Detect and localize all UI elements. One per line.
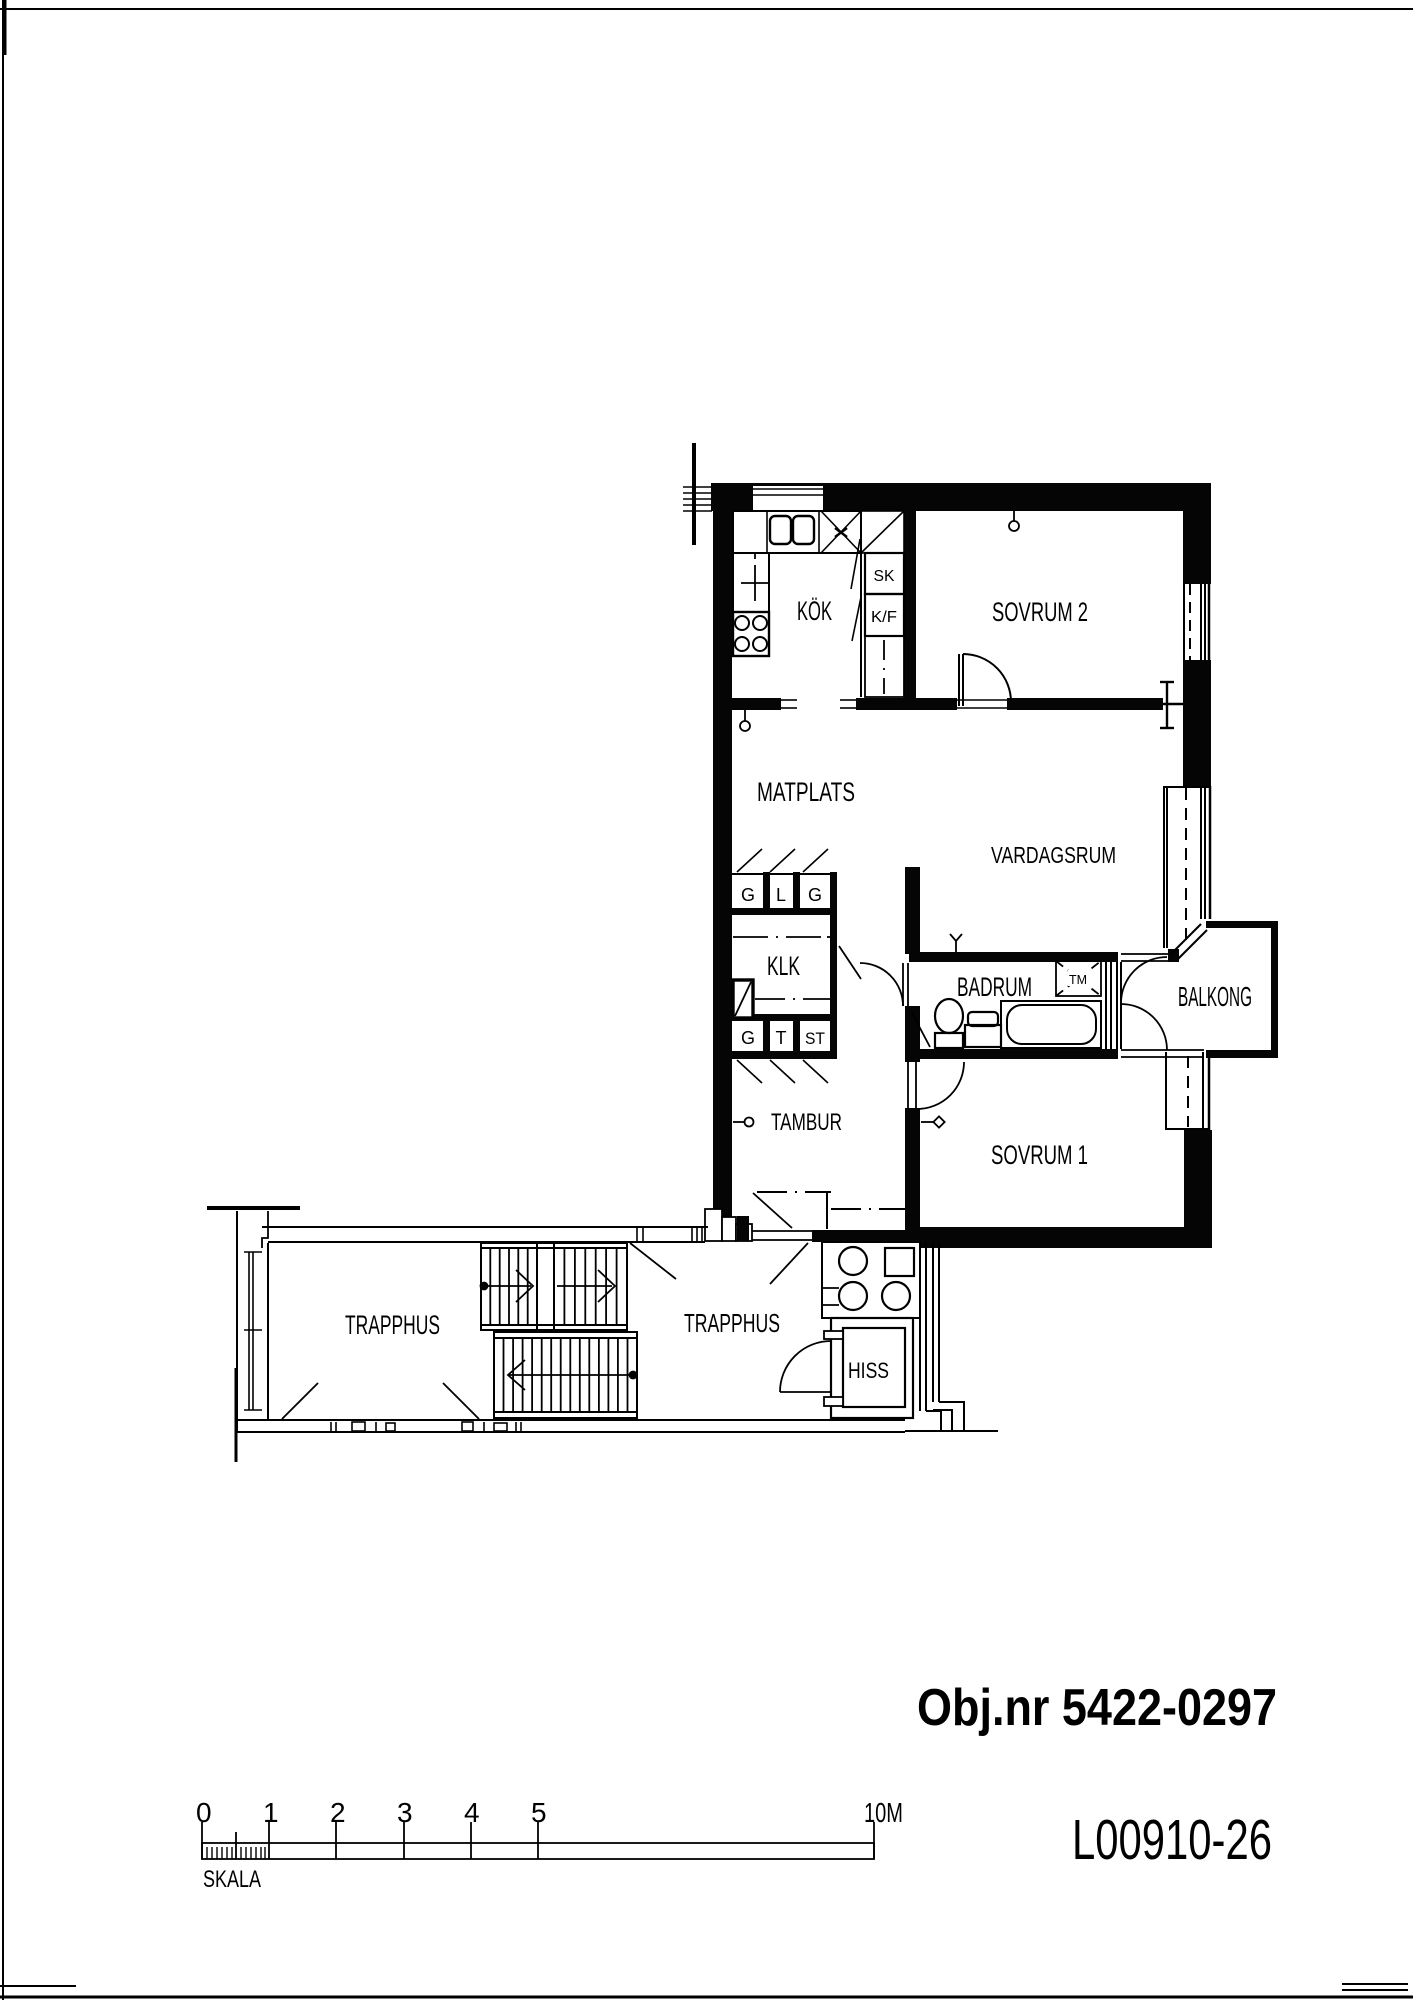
svg-text:G: G — [741, 885, 755, 905]
svg-text:Obj.nr 5422-0297: Obj.nr 5422-0297 — [917, 1679, 1277, 1737]
svg-text:TAMBUR: TAMBUR — [771, 1109, 842, 1136]
svg-text:SK: SK — [874, 568, 895, 585]
svg-text:BALKONG: BALKONG — [1178, 981, 1252, 1012]
svg-text:L: L — [776, 885, 786, 905]
svg-text:0: 0 — [196, 1797, 212, 1828]
svg-text:BADRUM: BADRUM — [957, 972, 1032, 1002]
svg-text:VARDAGSRUM: VARDAGSRUM — [991, 842, 1116, 868]
svg-text:1: 1 — [263, 1797, 279, 1828]
svg-text:MATPLATS: MATPLATS — [757, 777, 855, 807]
svg-text:TRAPPHUS: TRAPPHUS — [345, 1310, 440, 1340]
svg-text:4: 4 — [464, 1797, 480, 1828]
svg-text:HISS: HISS — [848, 1358, 889, 1383]
svg-text:10M: 10M — [864, 1797, 903, 1828]
svg-text:3: 3 — [397, 1797, 413, 1828]
svg-text:KLK: KLK — [767, 951, 800, 981]
svg-text:5: 5 — [531, 1797, 547, 1828]
svg-text:TM: TM — [1069, 972, 1087, 987]
svg-text:L00910-26: L00910-26 — [1072, 1808, 1272, 1872]
svg-text:G: G — [808, 885, 822, 905]
svg-text:G: G — [741, 1028, 755, 1048]
svg-text:TRAPPHUS: TRAPPHUS — [684, 1308, 780, 1338]
svg-text:SOVRUM 2: SOVRUM 2 — [992, 597, 1088, 627]
svg-text:ST: ST — [805, 1029, 825, 1048]
svg-text:2: 2 — [330, 1797, 346, 1828]
svg-text:SOVRUM 1: SOVRUM 1 — [991, 1140, 1088, 1170]
svg-text:T: T — [776, 1028, 787, 1048]
svg-text:K/F: K/F — [871, 609, 897, 626]
svg-text:KÖK: KÖK — [797, 596, 832, 626]
svg-text:SKALA: SKALA — [203, 1866, 261, 1893]
